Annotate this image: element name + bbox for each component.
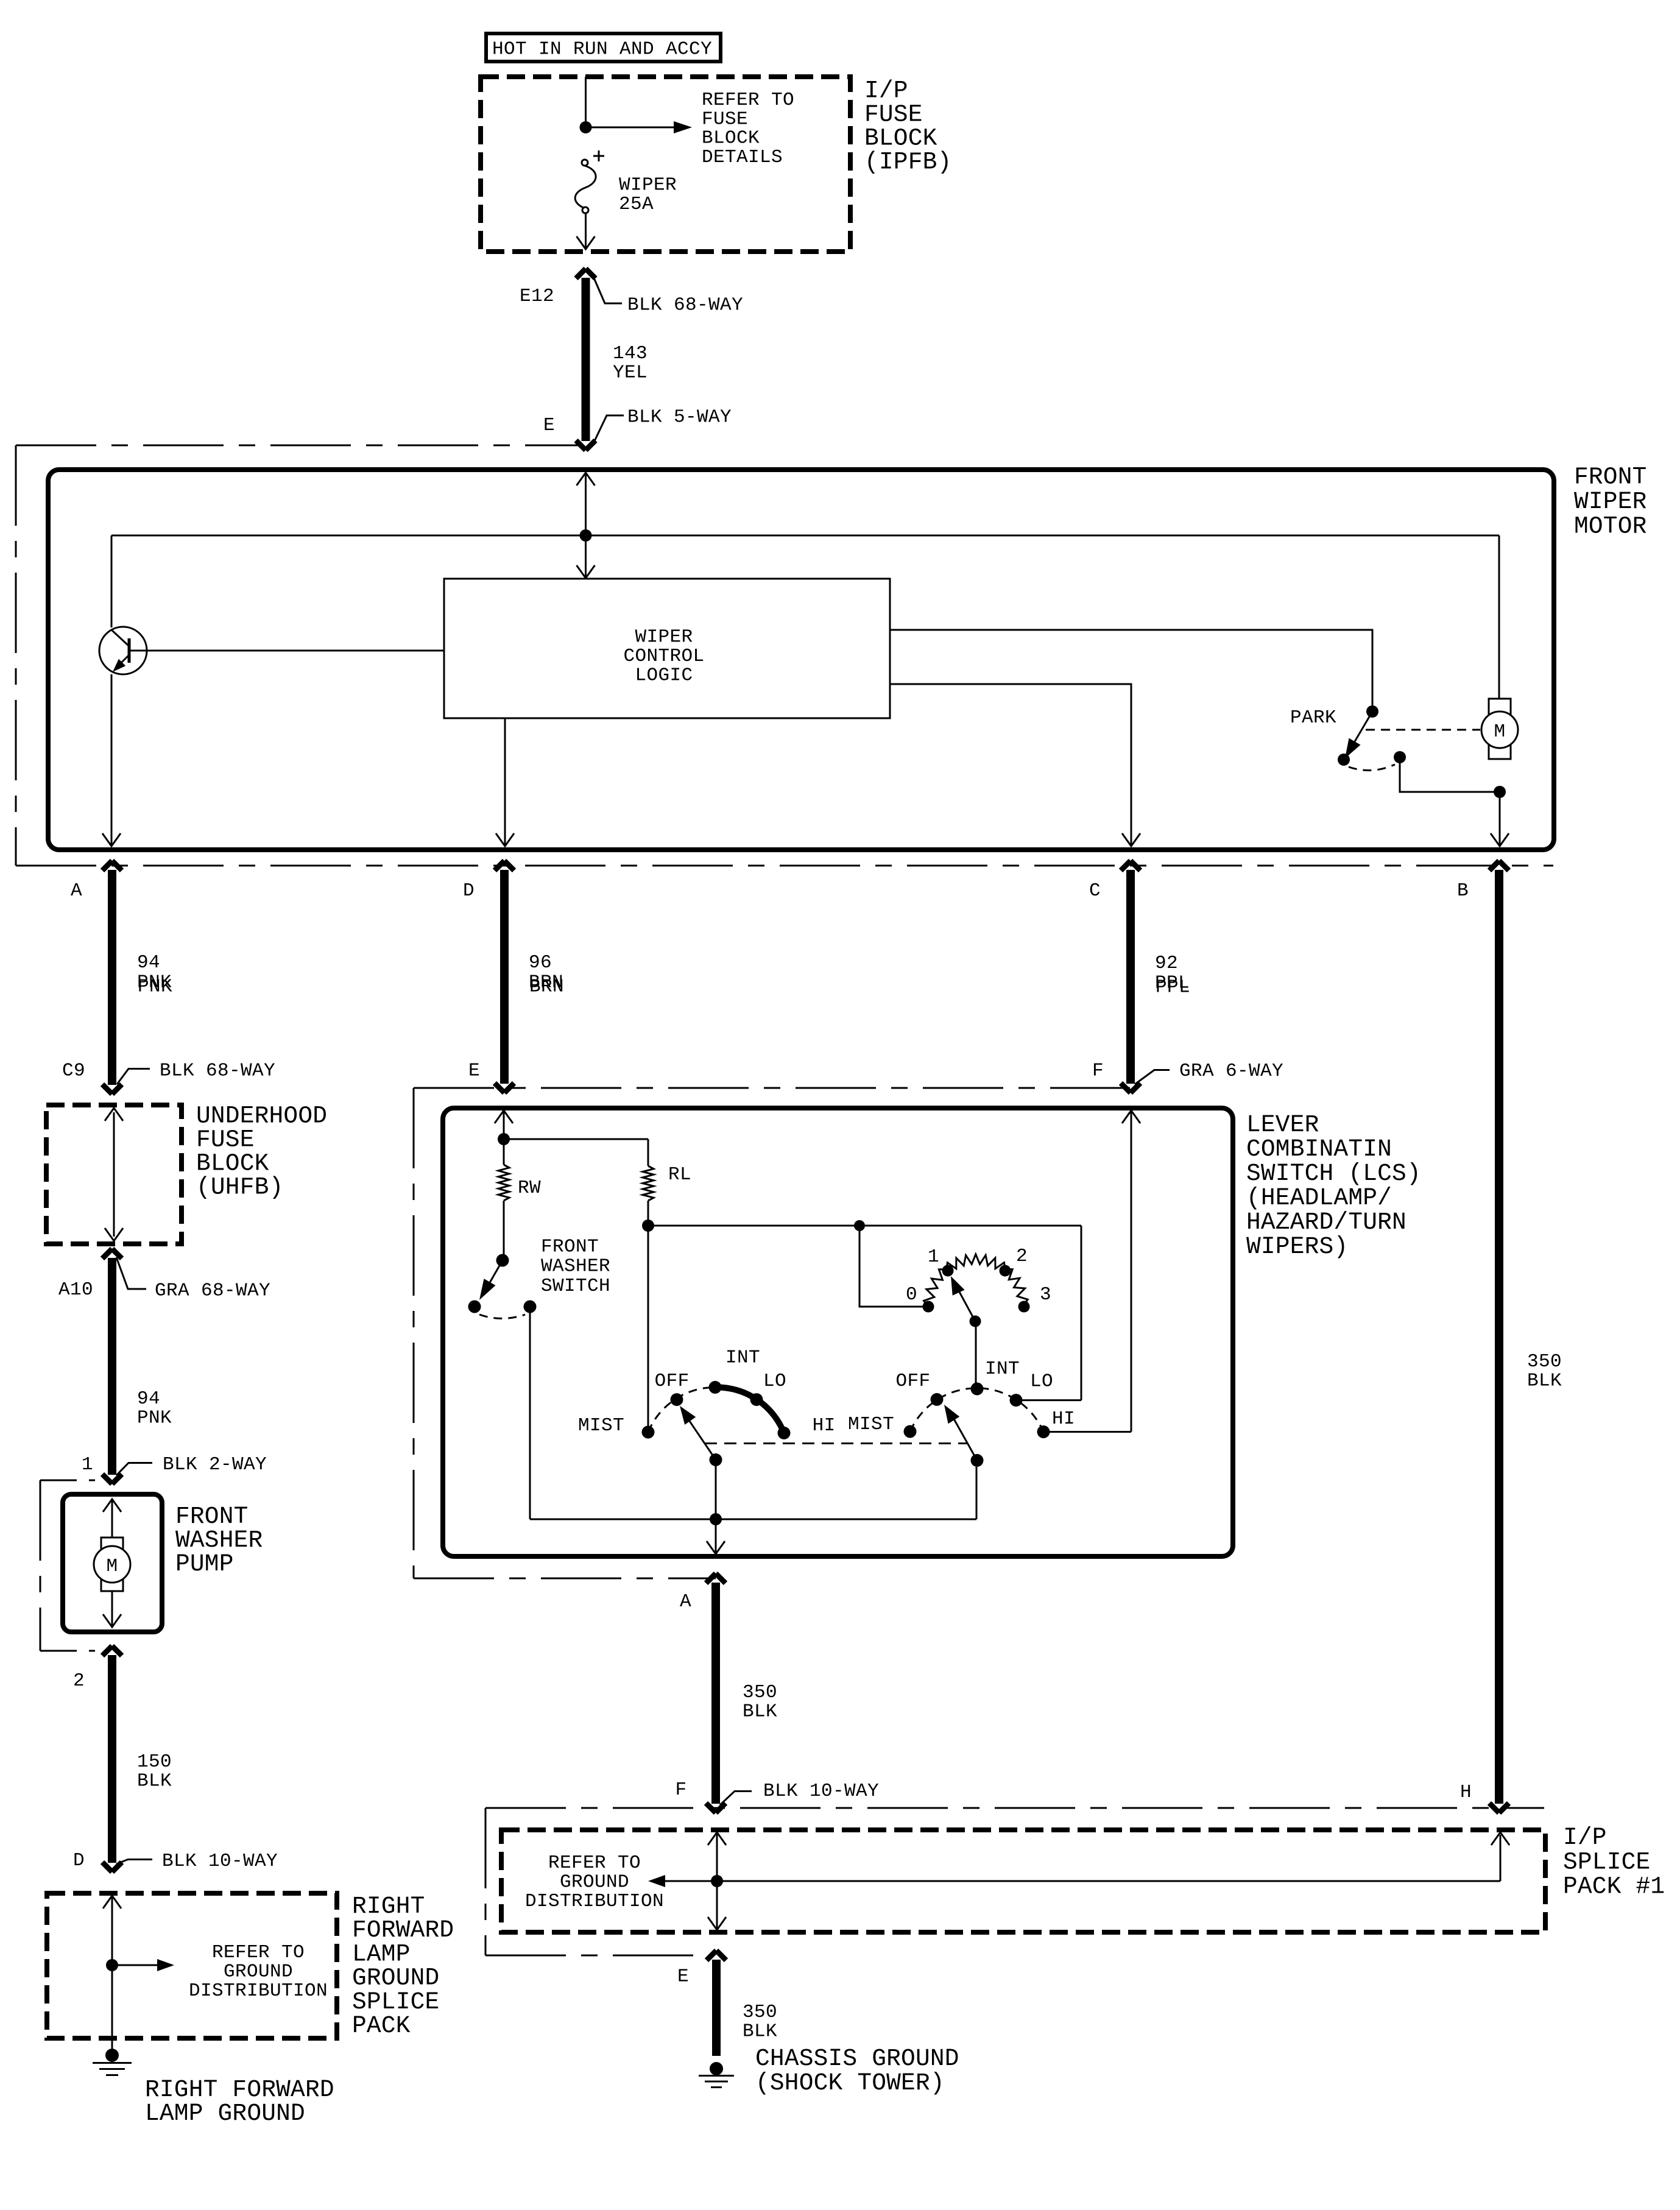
svg-text:(HEADLAMP/: (HEADLAMP/ bbox=[1246, 1184, 1392, 1212]
svg-text:3: 3 bbox=[1040, 1284, 1051, 1305]
svg-text:BLK: BLK bbox=[743, 2021, 777, 2042]
svg-text:2: 2 bbox=[1016, 1246, 1028, 1267]
svg-text:WIPER: WIPER bbox=[1574, 488, 1647, 515]
svg-text:DISTRIBUTION: DISTRIBUTION bbox=[189, 1980, 328, 2002]
svg-text:COMBINATIN: COMBINATIN bbox=[1246, 1135, 1392, 1163]
svg-text:BLK: BLK bbox=[137, 1771, 172, 1792]
svg-text:FRONT: FRONT bbox=[1574, 464, 1647, 491]
svg-text:CHASSIS GROUND: CHASSIS GROUND bbox=[755, 2045, 959, 2072]
svg-text:WIPERS): WIPERS) bbox=[1246, 1233, 1348, 1260]
svg-text:1: 1 bbox=[928, 1246, 939, 1268]
svg-text:M: M bbox=[1494, 721, 1505, 743]
svg-text:143: 143 bbox=[613, 343, 648, 364]
svg-text:INT: INT bbox=[985, 1358, 1020, 1380]
svg-text:REFER TO: REFER TO bbox=[212, 1942, 305, 1963]
svg-text:150: 150 bbox=[137, 1751, 172, 1773]
svg-text:GROUND: GROUND bbox=[224, 1961, 293, 1983]
svg-text:94: 94 bbox=[137, 1388, 160, 1410]
svg-text:BLK 2-WAY: BLK 2-WAY bbox=[163, 1454, 267, 1475]
svg-text:25A: 25A bbox=[619, 194, 654, 215]
svg-text:WIPER: WIPER bbox=[619, 175, 677, 196]
svg-text:I/P: I/P bbox=[1563, 1824, 1607, 1851]
svg-text:CONTROL: CONTROL bbox=[623, 646, 704, 667]
svg-text:PACK #1: PACK #1 bbox=[1563, 1873, 1665, 1900]
svg-text:REFER TO: REFER TO bbox=[548, 1852, 641, 1874]
svg-text:A: A bbox=[71, 880, 82, 902]
svg-text:INT: INT bbox=[725, 1347, 760, 1368]
svg-text:M: M bbox=[106, 1556, 118, 1577]
svg-text:350: 350 bbox=[1527, 1351, 1562, 1372]
svg-text:MIST: MIST bbox=[578, 1415, 624, 1436]
svg-text:96: 96 bbox=[529, 952, 552, 973]
svg-text:350: 350 bbox=[743, 2002, 777, 2023]
svg-text:REFER TO: REFER TO bbox=[702, 90, 794, 111]
svg-text:E12: E12 bbox=[520, 286, 554, 307]
svg-text:LEVER: LEVER bbox=[1246, 1111, 1319, 1139]
svg-text:H: H bbox=[1460, 1782, 1472, 1803]
svg-text:SWITCH (LCS): SWITCH (LCS) bbox=[1246, 1160, 1421, 1187]
svg-text:DISTRIBUTION: DISTRIBUTION bbox=[525, 1891, 664, 1912]
svg-text:LOGIC: LOGIC bbox=[635, 665, 693, 687]
svg-text:D: D bbox=[73, 1850, 85, 1871]
svg-text:(SHOCK TOWER): (SHOCK TOWER) bbox=[755, 2069, 945, 2097]
svg-text:DETAILS: DETAILS bbox=[702, 147, 783, 168]
svg-text:PUMP: PUMP bbox=[175, 1550, 234, 1578]
svg-text:GRA 68-WAY: GRA 68-WAY bbox=[155, 1280, 270, 1302]
svg-text:94: 94 bbox=[137, 952, 160, 973]
svg-text:92: 92 bbox=[1155, 953, 1178, 974]
svg-text:PARK: PARK bbox=[1290, 707, 1336, 729]
svg-text:SWITCH: SWITCH bbox=[541, 1276, 610, 1297]
svg-text:A: A bbox=[680, 1591, 691, 1612]
svg-text:B: B bbox=[1457, 880, 1469, 902]
svg-text:F: F bbox=[676, 1779, 687, 1801]
svg-text:(UHFB): (UHFB) bbox=[196, 1174, 283, 1201]
svg-text:WIPER: WIPER bbox=[635, 626, 693, 648]
svg-text:BLK: BLK bbox=[743, 1701, 777, 1723]
svg-text:E: E bbox=[543, 415, 555, 436]
svg-text:PPL: PPL bbox=[1156, 977, 1190, 998]
svg-text:GRA 6-WAY: GRA 6-WAY bbox=[1179, 1061, 1283, 1082]
svg-text:PNK: PNK bbox=[137, 1408, 172, 1429]
svg-text:C: C bbox=[1089, 880, 1101, 902]
svg-text:BLK 5-WAY: BLK 5-WAY bbox=[627, 407, 732, 428]
svg-text:YEL: YEL bbox=[613, 362, 648, 383]
svg-text:GROUND: GROUND bbox=[560, 1872, 629, 1893]
svg-text:2: 2 bbox=[73, 1670, 85, 1692]
svg-text:(IPFB): (IPFB) bbox=[864, 149, 951, 176]
svg-text:A10: A10 bbox=[58, 1279, 93, 1301]
svg-text:C9: C9 bbox=[62, 1061, 85, 1082]
svg-text:RW: RW bbox=[518, 1177, 541, 1199]
svg-text:OFF: OFF bbox=[655, 1371, 690, 1392]
svg-text:HAZARD/TURN: HAZARD/TURN bbox=[1246, 1209, 1406, 1236]
svg-text:BLK 68-WAY: BLK 68-WAY bbox=[627, 295, 743, 316]
svg-text:D: D bbox=[463, 880, 475, 902]
svg-text:E: E bbox=[468, 1061, 480, 1082]
svg-text:HI: HI bbox=[813, 1415, 836, 1436]
svg-text:FRONT: FRONT bbox=[541, 1237, 599, 1258]
svg-text:SPLICE: SPLICE bbox=[1563, 1848, 1650, 1876]
svg-text:FUSE: FUSE bbox=[702, 108, 748, 130]
svg-text:OFF: OFF bbox=[896, 1371, 931, 1392]
svg-text:LO: LO bbox=[1030, 1371, 1053, 1393]
svg-text:PACK: PACK bbox=[352, 2012, 411, 2039]
svg-text:HOT IN RUN AND ACCY: HOT IN RUN AND ACCY bbox=[492, 39, 712, 60]
svg-text:MOTOR: MOTOR bbox=[1574, 513, 1647, 540]
svg-text:PNK: PNK bbox=[138, 976, 172, 998]
svg-text:BRN: BRN bbox=[529, 976, 564, 998]
svg-text:BLOCK: BLOCK bbox=[702, 128, 760, 149]
svg-text:BLK 10-WAY: BLK 10-WAY bbox=[162, 1851, 278, 1872]
svg-text:350: 350 bbox=[743, 1682, 777, 1703]
svg-text:BLK 68-WAY: BLK 68-WAY bbox=[160, 1061, 275, 1082]
svg-text:HI: HI bbox=[1052, 1408, 1075, 1430]
svg-text:MIST: MIST bbox=[848, 1414, 894, 1435]
svg-text:F: F bbox=[1092, 1061, 1104, 1082]
svg-text:BLK: BLK bbox=[1527, 1370, 1562, 1391]
svg-text:0: 0 bbox=[906, 1284, 917, 1305]
svg-text:WASHER: WASHER bbox=[541, 1256, 610, 1277]
svg-text:LAMP GROUND: LAMP GROUND bbox=[145, 2100, 305, 2127]
svg-text:1: 1 bbox=[82, 1454, 93, 1475]
svg-text:BLK 10-WAY: BLK 10-WAY bbox=[763, 1781, 879, 1802]
svg-text:E: E bbox=[677, 1966, 689, 1988]
svg-text:LO: LO bbox=[763, 1371, 786, 1392]
svg-text:RL: RL bbox=[668, 1164, 691, 1185]
